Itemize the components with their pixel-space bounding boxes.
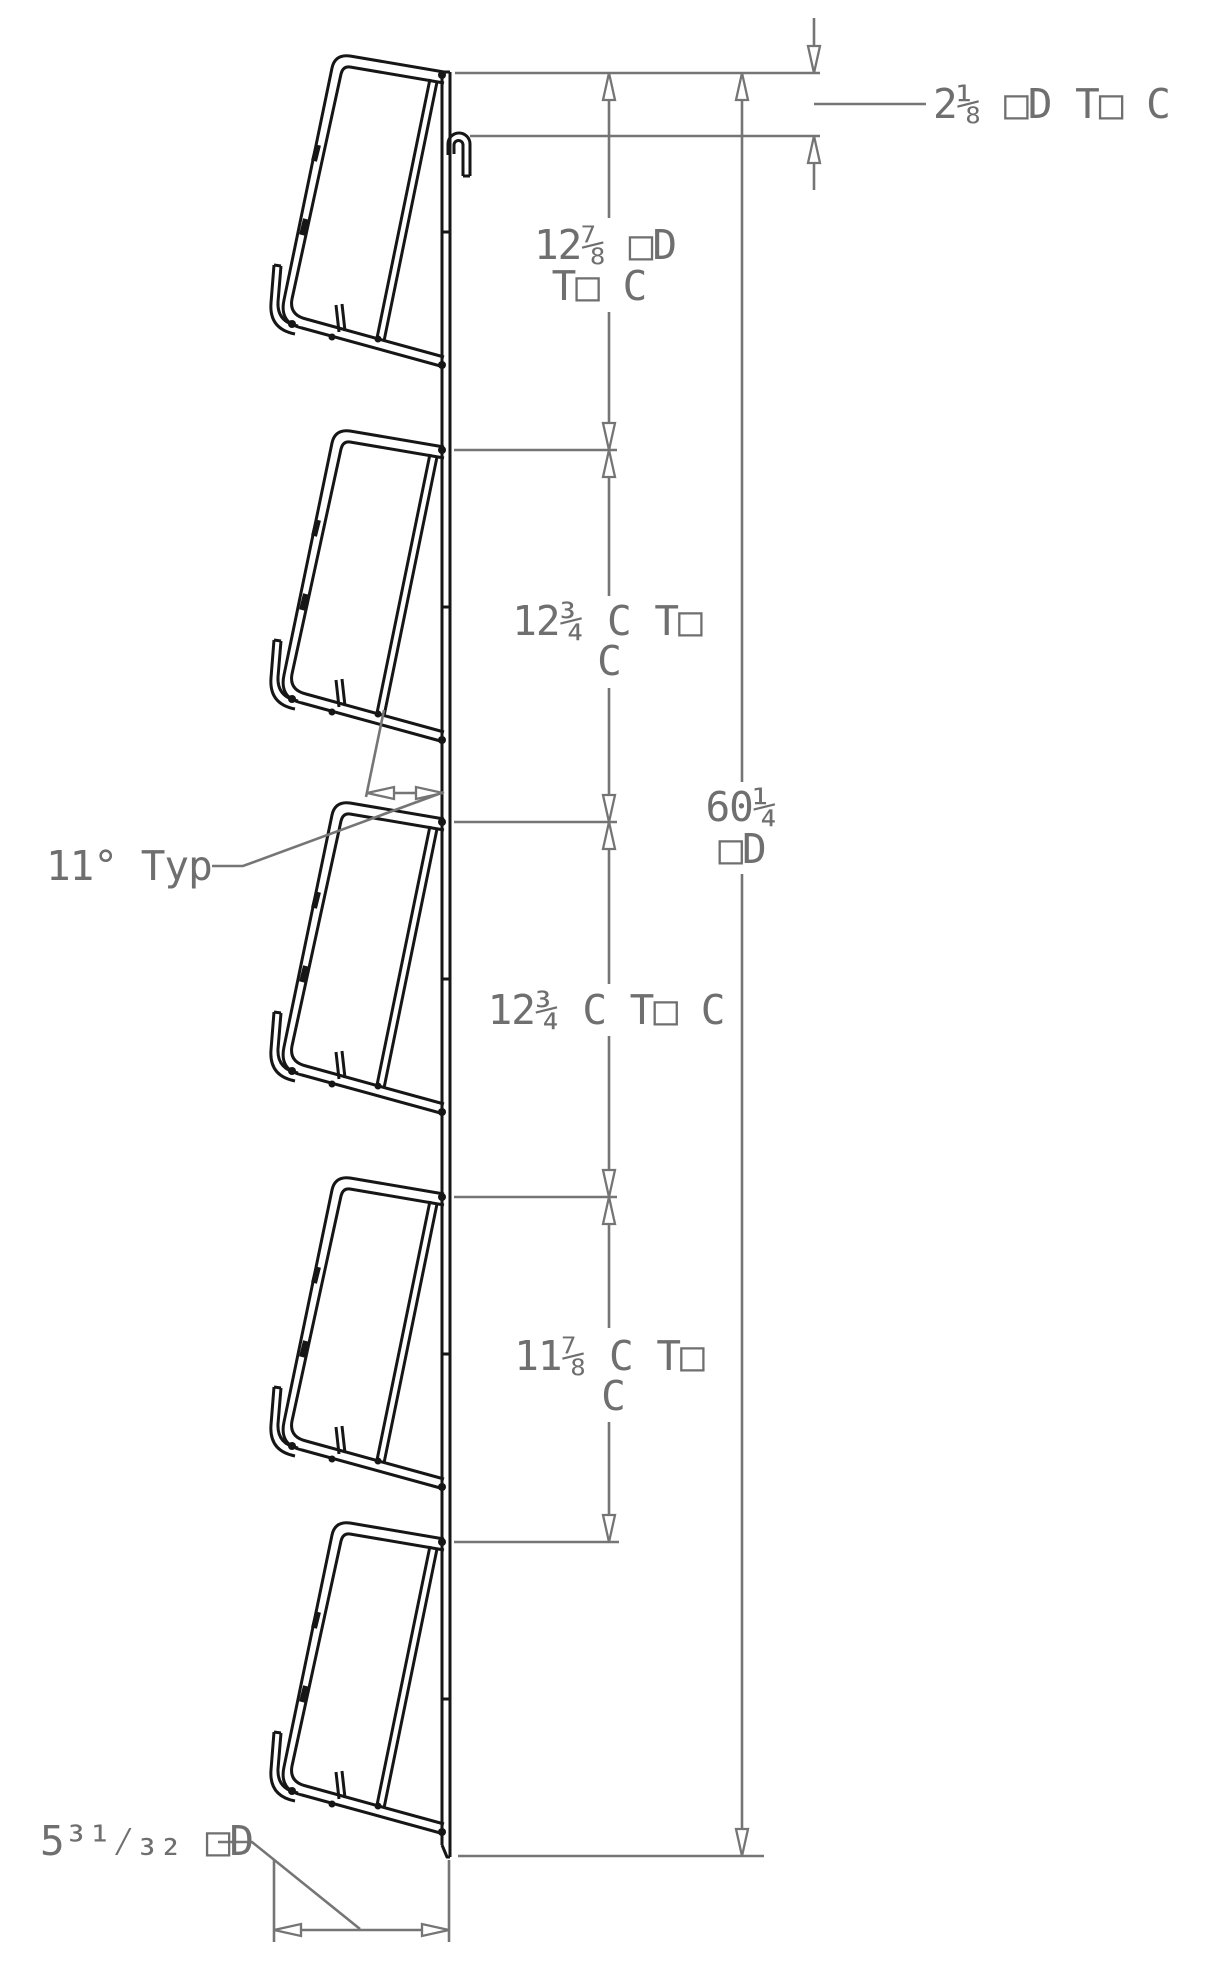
pocket-3 xyxy=(271,803,451,1116)
pocket-2 xyxy=(271,431,451,744)
dim-overall-height: 60¼ □D xyxy=(705,73,776,1856)
pocket-5 xyxy=(271,1523,451,1836)
drawing-canvas: 2⅛ □D T□ C 12⅞ □D T□ C 12¾ C T□ C 12¾ C … xyxy=(0,0,1224,1964)
dim-angle: 11° Typ xyxy=(46,710,444,890)
pocket-1 xyxy=(271,56,451,369)
dim-label-overall-line2: □D xyxy=(718,825,765,873)
dim-label-angle: 11° Typ xyxy=(46,842,212,890)
dim-spacing-chain: 12⅞ □D T□ C 12¾ C T□ C 12¾ C T□ C 11⅞ C … xyxy=(454,73,724,1542)
wall-strip xyxy=(442,72,450,1857)
dim-label-spacing1-line2: T□ C xyxy=(552,262,647,310)
dim-top-offset: 2⅛ □D T□ C xyxy=(470,18,1170,190)
dim-label-overall-line1: 60¼ xyxy=(705,783,776,831)
dim-label-spacing4-line2: C xyxy=(601,1372,625,1420)
dim-label-depth: 5³¹⁄₃₂ □D xyxy=(40,1817,253,1865)
dim-label-spacing3: 12¾ C T□ C xyxy=(488,986,725,1034)
dim-label-spacing2-line2: C xyxy=(597,637,621,685)
pocket-4 xyxy=(271,1178,451,1491)
dim-label-top-offset: 2⅛ □D T□ C xyxy=(933,80,1170,128)
dim-depth: 5³¹⁄₃₂ □D xyxy=(40,1817,449,1942)
